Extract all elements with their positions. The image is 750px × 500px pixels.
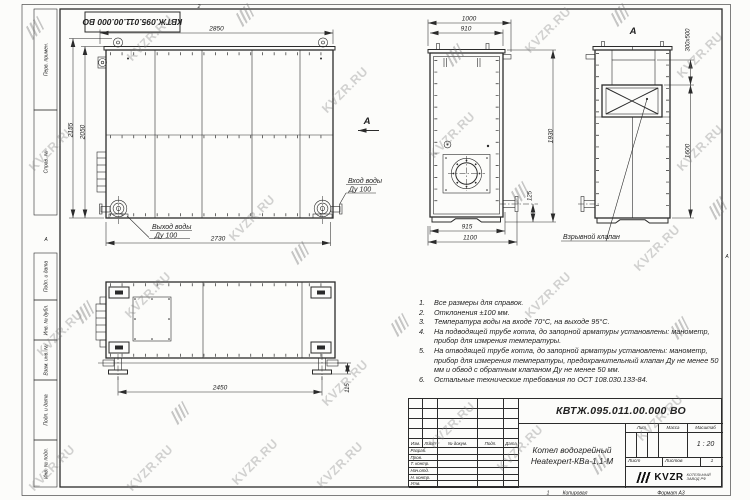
- note-item: 2.Отклонения ±100 мм.: [417, 308, 719, 318]
- product-name-line2: Heatexpert-КВа-1,1-М: [531, 456, 613, 467]
- scale-value: 1 : 20: [688, 432, 723, 458]
- signature-rows: Разраб. Пров. Т. контр. Нач.отд. Н. конт…: [409, 448, 519, 488]
- lifting-lug-left: [113, 38, 122, 47]
- rev-header-list: Лист: [423, 439, 438, 448]
- sig-row-label: Т. контр.: [409, 461, 438, 468]
- note-number: 2.: [417, 308, 434, 318]
- dim-side-top-outer: 1000: [428, 16, 511, 53]
- note-number: 1.: [417, 298, 434, 308]
- note-text: Остальные технические требования по ОСТ …: [434, 375, 719, 385]
- title-block: Изм. Лист № докум. Подп. Дата Разраб. Пр…: [408, 398, 722, 487]
- frame-label-perv-primen: Перв. примен.: [44, 43, 50, 76]
- doc-number-rotated: КВТЖ.095.011.00.000 ВО: [82, 17, 182, 27]
- title-block-right: Лит. Масса Масштаб 1 : 20 Лист Листов 1 …: [626, 424, 723, 488]
- svg-text:1600: 1600: [685, 143, 692, 158]
- dim-plan-length: 2450: [118, 376, 322, 396]
- document-designation: КВТЖ.095.011.00.000 ВО: [519, 399, 723, 424]
- note-text: Отклонения ±100 мм.: [434, 308, 719, 318]
- sig-row-label: Нач.отд.: [409, 468, 438, 475]
- base-skid: [432, 217, 501, 222]
- dim-side-flange-height: 125: [528, 190, 534, 222]
- copied-label: Копировал: [563, 491, 588, 497]
- water-inlet-flange: [313, 196, 342, 224]
- kvzr-logo-icon: [637, 472, 654, 483]
- svg-text:115: 115: [345, 383, 351, 393]
- lit-mass-scale-header: Лит. Масса Масштаб: [626, 424, 723, 432]
- revision-header: Изм. Лист № докум. Подп. Дата: [409, 439, 519, 448]
- chimney-hood: [612, 60, 655, 85]
- title-block-left: Изм. Лист № докум. Подп. Дата Разраб. Пр…: [409, 399, 519, 486]
- note-item: 6.Остальные технические требования по ОС…: [417, 375, 719, 385]
- note-number: 3.: [417, 317, 434, 327]
- product-name-line1: Котел водогрейный: [533, 445, 612, 456]
- explosion-valve: [602, 85, 662, 117]
- zone-marker-bottom: 1: [547, 491, 550, 497]
- technical-notes: 1.Все размеры для справок. 2.Отклонения …: [417, 298, 719, 384]
- frame-label-sprav-no: Справ. №: [44, 150, 50, 173]
- note-text: Температура воды на входе 70°С, на выход…: [434, 317, 719, 327]
- sig-row-label: Н. контр.: [409, 475, 438, 482]
- svg-text:1930: 1930: [548, 128, 555, 143]
- plan-view: 2450 115: [96, 282, 351, 396]
- sig-row-label: Разраб.: [409, 448, 438, 455]
- svg-text:А: А: [363, 116, 371, 127]
- note-item: 1.Все размеры для справок.: [417, 298, 719, 308]
- rear-top-stub: [503, 55, 511, 60]
- top-opening: [133, 297, 171, 341]
- frame-label-podp-data-1: Подп. и дата: [44, 261, 50, 293]
- svg-text:2850: 2850: [208, 26, 224, 33]
- dim-plan-foot: 115: [332, 363, 352, 393]
- svg-text:125: 125: [528, 190, 534, 201]
- dim-side-bottom-inner: 915: [430, 212, 505, 235]
- svg-text:910: 910: [461, 26, 472, 33]
- dim-side-top-inner: 910: [430, 26, 503, 47]
- frame-label-inv-podl: Инв. № подл.: [44, 448, 50, 479]
- section-arrow-a: А: [358, 116, 379, 131]
- svg-text:Ду 100: Ду 100: [154, 233, 177, 240]
- kvzr-logo-text: KVZR: [654, 472, 683, 483]
- svg-text:Вход воды: Вход воды: [348, 177, 383, 185]
- svg-text:2450: 2450: [212, 385, 228, 392]
- company-logo: KVZR КОТЕЛЬНЫЙ ЗАВОД РФ: [626, 466, 723, 488]
- rev-header-data: Дата: [504, 439, 519, 448]
- frame-label-inv-dubl: Инв. № дубл.: [44, 305, 50, 336]
- note-item: 5.На отводящей трубе котла, до запорной …: [417, 346, 719, 375]
- zone-marker-right: А: [724, 254, 729, 260]
- lifting-lug-right: [318, 38, 327, 47]
- sig-row-label: Пров.: [409, 455, 438, 462]
- svg-text:915: 915: [462, 224, 473, 231]
- front-view: 2850 2155 2050 2730 Выход воды Ду 100: [68, 26, 383, 247]
- dim-front-bottom: 2730: [106, 222, 331, 246]
- svg-text:Ду 100: Ду 100: [348, 187, 371, 194]
- frame-label-podp-data-2: Подп. и дата: [44, 394, 50, 426]
- note-number: 4.: [417, 327, 434, 346]
- view-a: А 300x500: [561, 26, 694, 241]
- note-text: На отводящей трубе котла, до запорной ар…: [434, 346, 719, 375]
- view-a-label: А: [629, 26, 637, 37]
- product-name: Котел водогрейный Heatexpert-КВа-1,1-М: [519, 424, 626, 488]
- side-view: 1000 910 1930 125 915 1100: [428, 16, 556, 246]
- dim-view-a-height: 1600: [672, 85, 694, 218]
- side-eyelet: [98, 57, 107, 68]
- plan-ladder-bracket: [96, 297, 106, 347]
- lit-mass-scale-values: 1 : 20: [626, 432, 723, 457]
- front-pipe-stub: [578, 197, 600, 212]
- note-item: 3.Температура воды на входе 70°С, на вых…: [417, 317, 719, 327]
- side-ladder-bracket: [97, 152, 106, 192]
- kvzr-logo-caption: КОТЕЛЬНЫЙ ЗАВОД РФ: [687, 473, 711, 482]
- drawing-sheet: Перв. примен. Справ. № Подп. и дата Инв.…: [0, 0, 750, 500]
- zone-marker-left: А: [43, 237, 48, 243]
- note-number: 5.: [417, 346, 434, 375]
- svg-text:Выход воды: Выход воды: [152, 223, 192, 231]
- sig-row-label: Утв.: [409, 481, 438, 488]
- sight-glass: [444, 141, 489, 148]
- note-text: На подводящей трубе котла, до запорной а…: [434, 327, 719, 346]
- water-outlet-flange: [100, 196, 129, 224]
- svg-text:2050: 2050: [80, 124, 87, 140]
- rev-header-izm: Изм.: [409, 439, 423, 448]
- rev-header-dokum: № докум.: [438, 439, 478, 448]
- svg-text:2155: 2155: [68, 122, 75, 138]
- sheet-count-row: Лист Листов 1: [626, 457, 723, 466]
- svg-text:1100: 1100: [463, 235, 477, 242]
- svg-text:300x500: 300x500: [686, 28, 692, 52]
- format-label: Формат А3: [657, 491, 685, 497]
- burner-flange: [443, 155, 490, 194]
- frame-label-vzam-inv: Взам. инв. №: [44, 344, 50, 376]
- svg-text:Взрывной клапан: Взрывной клапан: [563, 233, 620, 241]
- base-skid-a: [597, 218, 668, 223]
- rev-header-podp: Подп.: [478, 439, 504, 448]
- dim-front-top: 2850: [100, 26, 333, 45]
- revision-table: [409, 399, 519, 439]
- zone-marker-top: 2: [197, 4, 201, 10]
- dim-view-a-opening: 300x500: [657, 28, 694, 85]
- note-item: 4.На подводящей трубе котла, до запорной…: [417, 327, 719, 346]
- svg-text:1000: 1000: [462, 16, 477, 23]
- callout-water-outlet: Выход воды Ду 100: [127, 216, 192, 240]
- note-number: 6.: [417, 375, 434, 385]
- svg-text:2730: 2730: [210, 236, 226, 243]
- callout-water-inlet: Вход воды Ду 100: [340, 177, 383, 204]
- note-text: Все размеры для справок.: [434, 298, 719, 308]
